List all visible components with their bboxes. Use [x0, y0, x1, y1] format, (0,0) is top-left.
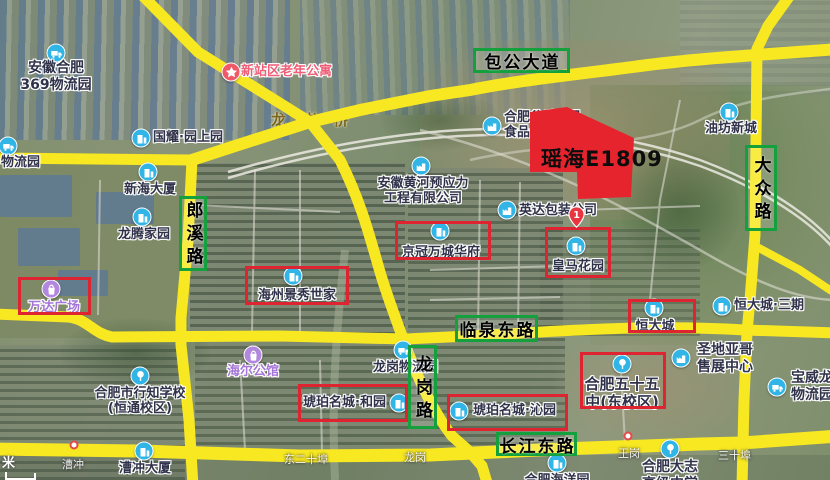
yingda-packaging-factory-icon[interactable] — [498, 201, 517, 220]
plot-label: 瑶海E1809 — [541, 143, 663, 173]
haizhou-jingxiu-shijia-building-icon[interactable] — [284, 267, 303, 286]
pin-marker-1[interactable]: 1 — [568, 206, 585, 232]
road-label-dazhong-road: 大众路 — [745, 145, 777, 231]
huangma-garden-building-icon[interactable] — [567, 237, 586, 256]
xinhai-building-label[interactable]: 新海大厦 — [124, 182, 176, 197]
hefei-no55-middle-school-label[interactable]: 合肥五十五中(东校区) — [584, 376, 659, 411]
riverbed — [334, 250, 345, 480]
svg-text:1: 1 — [573, 210, 580, 221]
guoyao-yuanshangyuan-label[interactable]: 国耀·园上园 — [153, 130, 223, 145]
haier-gongguan-label[interactable]: 海尔公馆 — [227, 364, 279, 379]
longteng-homeland-label[interactable]: 龙腾家园 — [118, 227, 170, 242]
hengdacheng-label[interactable]: 恒大城 — [635, 319, 674, 334]
busstop-wanggang[interactable] — [624, 432, 633, 441]
guoyao-yuanshangyuan-building-icon[interactable] — [132, 129, 151, 148]
shengdiyage-sales-center-label[interactable]: 圣地亚哥售展中心 — [697, 342, 753, 375]
jingguan-wancheng-huafu-building-icon[interactable] — [431, 222, 450, 241]
road-label-langxi-road: 郎溪路 — [179, 196, 207, 271]
anhui-369-logistics-label[interactable]: 安徽合肥369物流园 — [20, 60, 91, 93]
hefei-dazhi-school-school-icon[interactable] — [661, 440, 680, 459]
shengdiyage-sales-center-factory-icon[interactable] — [672, 349, 691, 368]
yingda-packaging-label[interactable]: 英达包装公司 — [519, 203, 597, 218]
wanda-plaza-label[interactable]: 万达广场 — [28, 300, 80, 315]
huangma-garden-label[interactable]: 皇马花园 — [552, 259, 604, 274]
hupo-mingcheng-heyuan-building-icon[interactable] — [390, 394, 409, 413]
anhui-huanghe-prestress-factory-icon[interactable] — [412, 157, 431, 176]
xinzhan-elderly-apartment-label[interactable]: 新站区老年公寓 — [241, 64, 332, 79]
hengdacheng-building-icon[interactable] — [645, 299, 664, 318]
longteng-homeland-building-icon[interactable] — [133, 208, 152, 227]
anhui-huanghe-prestress-label[interactable]: 安徽黄河预应力工程有限公司 — [377, 176, 468, 207]
xinhai-building-building-icon[interactable] — [139, 163, 158, 182]
faint-label-sanshibu: 三十埠 — [718, 447, 751, 463]
hefei-gushi-food-label[interactable]: 合肥谷香食品食品公司 — [504, 110, 582, 141]
caochong-building-building-icon[interactable] — [135, 442, 154, 461]
scale-unit-label: 米 — [2, 456, 15, 471]
scale-bracket — [4, 471, 40, 480]
youfang-xincheng-label[interactable]: 油坊新城 — [705, 121, 757, 136]
road-label-changjiang-east-road: 长江东路 — [496, 432, 577, 456]
road-label-baogong-avenue: 包公大道 — [473, 48, 570, 73]
hupo-mingcheng-qinyuan-building-icon[interactable] — [450, 402, 469, 421]
haizhou-jingxiu-shijia-label[interactable]: 海州景秀世家 — [258, 288, 336, 303]
hupo-mingcheng-qinyuan-label[interactable]: 琥珀名城·沁园 — [473, 403, 556, 418]
wanda-plaza-bag-icon[interactable] — [42, 280, 61, 299]
map-canvas[interactable]: 龙岗桥 瑶海E1809 — [0, 0, 830, 480]
faint-label-dongershibu: 东二十埠 — [284, 451, 328, 467]
hengdacheng-phase3-label[interactable]: 恒大城·三期 — [734, 298, 804, 313]
xingzhi-school-school-icon[interactable] — [131, 367, 150, 386]
hupo-mingcheng-heyuan-label[interactable]: 琥珀名城·和园 — [303, 395, 386, 410]
busstop-caochong[interactable] — [70, 441, 79, 450]
hefei-gushi-food-factory-icon[interactable] — [483, 117, 502, 136]
faint-label-caochong-stop: 漕冲 — [62, 456, 84, 472]
baoweilong-logistics-truck-icon[interactable] — [768, 378, 787, 397]
faint-label-longgang: 龙岗 — [404, 449, 426, 465]
road-label-linquan-east-road: 临泉东路 — [455, 315, 538, 342]
hefei-haiyang-park-label[interactable]: 合肥海洋园 — [524, 473, 589, 480]
caochong-building-label[interactable]: 漕冲大厦 — [119, 461, 171, 476]
faint-label-wanggang-stop: 王岗 — [618, 445, 640, 461]
road-label-longgang-road: 龙岗路 — [408, 345, 437, 429]
logistics-park-left-edge-truck-icon[interactable] — [0, 137, 18, 156]
jingguan-wancheng-huafu-label[interactable]: 京冠万城华府 — [402, 245, 480, 260]
baoweilong-logistics-label[interactable]: 宝威龙志物流园 — [791, 370, 830, 403]
hefei-dazhi-school-label[interactable]: 合肥大志高级中学 — [642, 459, 698, 480]
xinzhan-elderly-apartment-star-icon[interactable] — [222, 63, 241, 82]
youfang-xincheng-building-icon[interactable] — [720, 103, 739, 122]
hefei-no55-middle-school-school-icon[interactable] — [613, 355, 632, 374]
logistics-park-left-edge-label[interactable]: 物流园 — [1, 155, 40, 170]
scale-bar: 米 — [2, 452, 40, 480]
xingzhi-school-label[interactable]: 合肥市行知学校(恒通校区) — [94, 386, 185, 417]
hengdacheng-phase3-building-icon[interactable] — [713, 297, 732, 316]
haier-gongguan-bag-icon[interactable] — [244, 346, 263, 365]
